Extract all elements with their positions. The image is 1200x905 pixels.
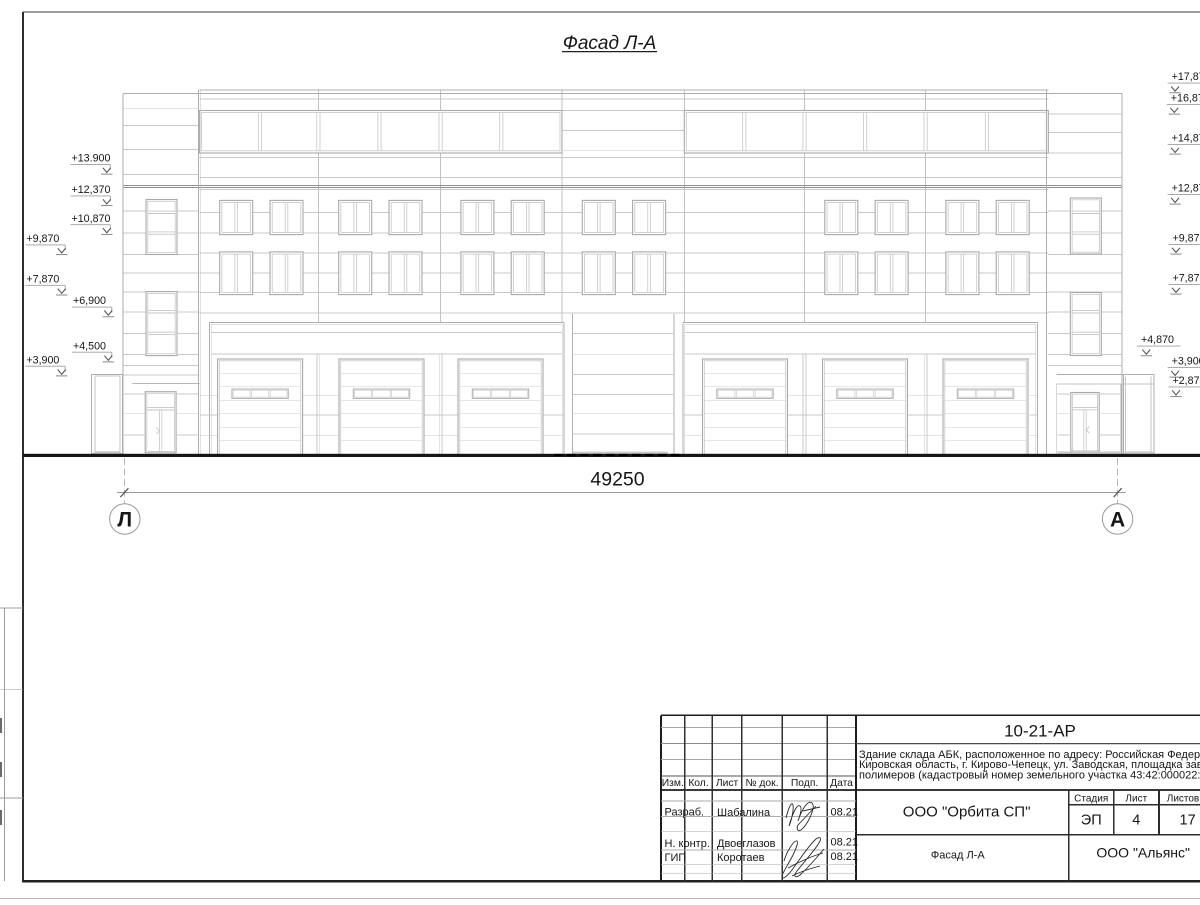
svg-text:Лист: Лист bbox=[1125, 793, 1147, 804]
svg-text:+7,870: +7,870 bbox=[26, 273, 59, 285]
svg-text:+14,870: +14,870 bbox=[1172, 133, 1200, 145]
svg-text:Коротаев: Коротаев bbox=[717, 852, 765, 864]
svg-text:+3,900: +3,900 bbox=[1172, 356, 1200, 368]
svg-text:Листов: Листов bbox=[1167, 793, 1200, 804]
svg-text:ГИП: ГИП bbox=[665, 852, 687, 864]
svg-text:Подп.: Подп. bbox=[791, 778, 818, 789]
svg-text:4: 4 bbox=[1132, 813, 1140, 829]
svg-text:№ док.: № док. bbox=[745, 778, 778, 789]
svg-text:+17,870: +17,870 bbox=[1172, 71, 1200, 83]
svg-text:49250: 49250 bbox=[590, 468, 644, 490]
svg-text:+16,870: +16,870 bbox=[1171, 93, 1200, 105]
svg-text:Кол.: Кол. bbox=[688, 778, 708, 789]
svg-text:Н. контр.: Н. контр. bbox=[665, 838, 710, 850]
svg-text:ЭП: ЭП bbox=[1081, 813, 1102, 829]
svg-text:+12,870: +12,870 bbox=[1172, 183, 1200, 195]
svg-text:08.21: 08.21 bbox=[831, 837, 859, 849]
svg-text:Л: Л bbox=[117, 508, 132, 531]
svg-text:+13.900: +13.900 bbox=[72, 153, 111, 165]
svg-text:Разраб.: Разраб. bbox=[665, 807, 705, 819]
svg-text:+4,500: +4,500 bbox=[73, 340, 106, 352]
svg-text:17: 17 bbox=[1180, 813, 1196, 829]
svg-text:+4,870: +4,870 bbox=[1141, 334, 1174, 346]
svg-text:полимеров (кадастровый номер з: полимеров (кадастровый номер земельного … bbox=[859, 769, 1200, 781]
svg-text:08.21: 08.21 bbox=[831, 807, 859, 819]
svg-text:10-21-АР: 10-21-АР bbox=[1004, 722, 1076, 741]
svg-text:Двоеглазов: Двоеглазов bbox=[717, 838, 776, 850]
svg-text:Дата: Дата bbox=[830, 778, 853, 789]
svg-text:+2,870: +2,870 bbox=[1173, 375, 1200, 387]
svg-text:+7,870: +7,870 bbox=[1173, 273, 1200, 285]
svg-text:+10,870: +10,870 bbox=[72, 213, 111, 225]
svg-text:ООО "Орбита СП": ООО "Орбита СП" bbox=[903, 804, 1031, 821]
svg-text:+3,900: +3,900 bbox=[26, 354, 59, 366]
svg-text:+9,870: +9,870 bbox=[1173, 233, 1200, 245]
svg-text:Шабалина: Шабалина bbox=[717, 807, 771, 819]
svg-text:ООО "Альянс": ООО "Альянс" bbox=[1096, 844, 1190, 860]
svg-text:А: А bbox=[1110, 508, 1125, 531]
svg-text:Стадия: Стадия bbox=[1074, 793, 1108, 804]
svg-text:+6,900: +6,900 bbox=[73, 295, 106, 307]
svg-text:08.21: 08.21 bbox=[831, 851, 859, 863]
svg-text:+9,870: +9,870 bbox=[26, 233, 59, 245]
svg-text:+12,370: +12,370 bbox=[72, 184, 111, 196]
svg-text:Фасад Л-А: Фасад Л-А bbox=[931, 850, 985, 862]
svg-text:Фасад Л-А: Фасад Л-А bbox=[563, 33, 657, 54]
svg-text:Изм.: Изм. bbox=[662, 778, 684, 789]
svg-text:Лист: Лист bbox=[716, 778, 739, 789]
